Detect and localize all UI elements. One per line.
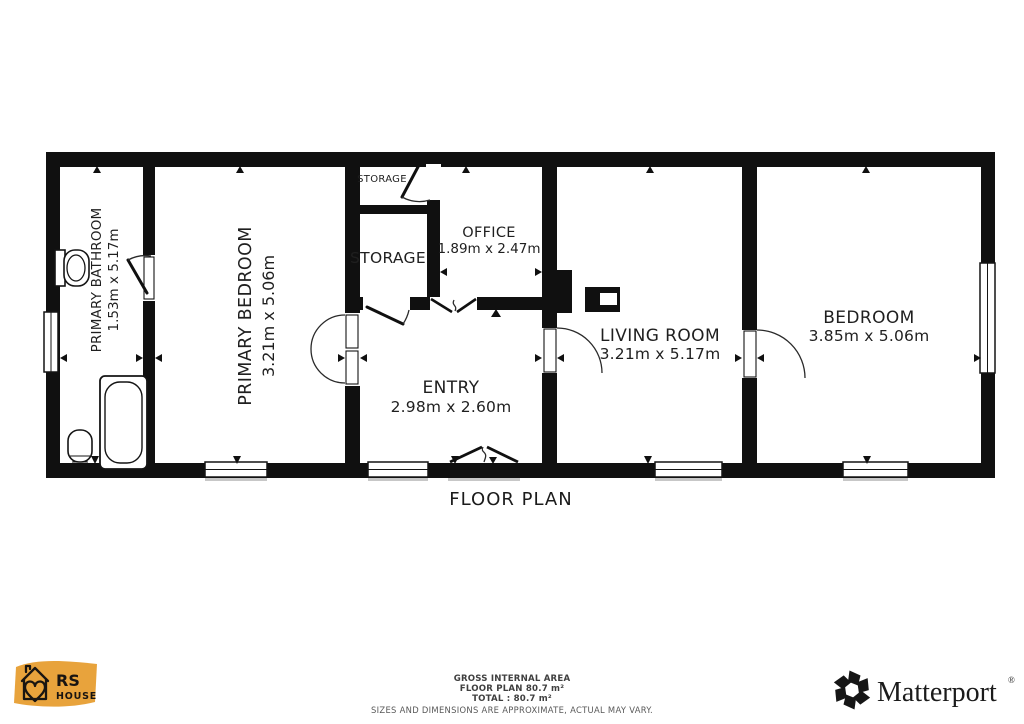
footer-area-summary: GROSS INTERNAL AREA FLOOR PLAN 80.7 m² T… — [371, 674, 653, 715]
window-living-bottom — [655, 462, 722, 477]
living-room-door — [544, 328, 602, 373]
total-area-value: TOTAL : 80.7 m² — [472, 694, 552, 704]
windows — [44, 263, 995, 481]
room-dims-primary-bathroom: 1.53m x 5.17m — [106, 229, 122, 332]
matterport-icon — [831, 671, 873, 710]
registered-trademark-symbol: ® — [1008, 675, 1015, 685]
rs-logo-subtext: HOUSE — [56, 691, 97, 702]
room-label-storage: STORAGE — [350, 249, 426, 267]
wall-living-bedroom — [742, 152, 757, 478]
window-entry-bottom — [368, 462, 428, 477]
toilet-icon — [55, 250, 89, 286]
matterport-logo: Matterport ® — [831, 671, 1015, 710]
window-sill — [843, 478, 908, 481]
disclaimer-text: SIZES AND DIMENSIONS ARE APPROXIMATE, AC… — [371, 705, 653, 715]
opening-storage-door — [426, 164, 441, 200]
room-labels: PRIMARY BATHROOM 1.53m x 5.17m PRIMARY B… — [89, 174, 929, 416]
main-entrance-door — [450, 447, 518, 464]
wall-chimney-protrusion — [557, 270, 572, 313]
bedroom-door — [744, 330, 805, 378]
sink-icon — [68, 430, 92, 462]
floor-plan-canvas: PRIMARY BATHROOM 1.53m x 5.17m PRIMARY B… — [0, 0, 1024, 724]
window-primary-bedroom-bottom — [205, 462, 267, 477]
room-dims-entry: 2.98m x 2.60m — [391, 398, 512, 416]
wall-exterior-top — [46, 152, 995, 167]
room-label-primary-bedroom: PRIMARY BEDROOM — [236, 226, 256, 406]
wall-storage-divider — [345, 205, 440, 214]
rs-house-logo: RS HOUSE — [14, 661, 97, 707]
room-dims-living-room: 3.21m x 5.17m — [600, 345, 721, 363]
floor-plan-page: PRIMARY BATHROOM 1.53m x 5.17m PRIMARY B… — [0, 0, 1024, 724]
window-bedroom-right — [980, 263, 995, 373]
room-dims-primary-bedroom: 3.21m x 5.06m — [259, 255, 278, 377]
room-label-storage-small: STORAGE — [357, 174, 407, 185]
room-dims-office: 1.89m x 2.47m — [438, 241, 541, 257]
window-sill — [368, 478, 428, 481]
room-dims-bedroom: 3.85m x 5.06m — [809, 327, 930, 345]
doors — [128, 165, 805, 464]
fireplace-icon — [585, 287, 620, 312]
room-label-primary-bathroom: PRIMARY BATHROOM — [89, 208, 105, 353]
matterport-wordmark: Matterport — [877, 677, 997, 708]
bathtub-icon — [100, 376, 147, 469]
window-bedroom-bottom — [843, 462, 908, 477]
gross-internal-area-label: GROSS INTERNAL AREA — [454, 674, 571, 684]
room-label-office: OFFICE — [462, 225, 515, 241]
window-bathroom-left — [44, 312, 58, 372]
window-sill — [655, 478, 722, 481]
window-sill — [205, 478, 267, 481]
wall-entry-living — [542, 152, 557, 478]
room-label-bedroom: BEDROOM — [823, 308, 915, 328]
rs-logo-text: RS — [56, 671, 80, 690]
room-label-living-room: LIVING ROOM — [600, 326, 720, 346]
plan-title: FLOOR PLAN — [449, 489, 572, 510]
bathroom-door — [128, 256, 154, 299]
room-label-entry: ENTRY — [423, 378, 480, 398]
floor-plan-area-value: FLOOR PLAN 80.7 m² — [460, 684, 564, 694]
door-sill — [448, 478, 520, 481]
